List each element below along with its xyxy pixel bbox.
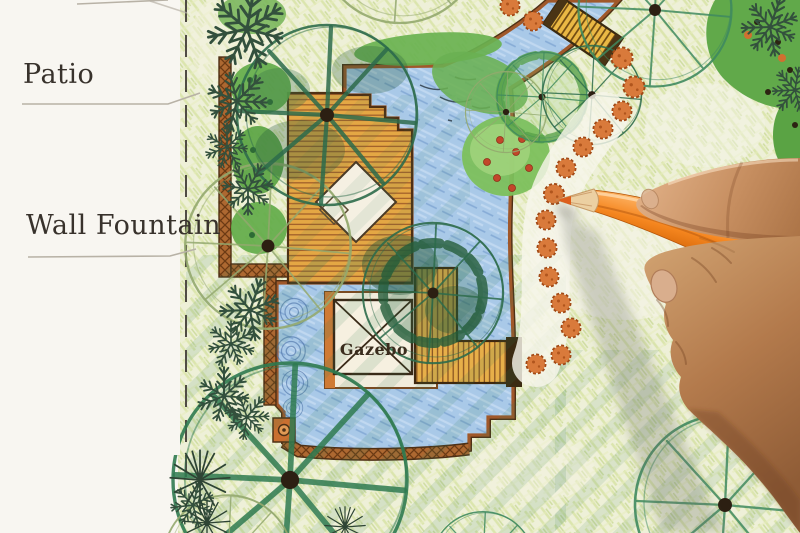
stepping-stone — [593, 119, 612, 138]
plan-drawing — [0, 0, 800, 533]
stepping-stone — [500, 0, 519, 16]
stepping-stone — [536, 210, 555, 229]
stepping-stone — [556, 158, 575, 177]
stepping-stone — [551, 293, 570, 312]
stepping-stone — [611, 47, 632, 68]
annotation-patio: Patio — [23, 59, 94, 90]
gazebo-label: Gazebo — [336, 340, 412, 359]
stepping-stone — [623, 76, 644, 97]
annotation-wall-fountain: Wall Fountain — [26, 210, 221, 241]
stepping-stone — [561, 318, 580, 337]
stepping-stone — [551, 345, 570, 364]
stepping-stone — [523, 11, 542, 30]
stepping-stone — [537, 238, 556, 257]
stepping-stone — [573, 137, 592, 156]
stepping-stone — [526, 354, 545, 373]
tree-shadow-stripes-left — [186, 255, 566, 533]
landscape-plan-photo: Patio Wall Fountain Gazebo — [0, 0, 800, 533]
stepping-stone — [539, 267, 558, 286]
stepping-stone — [612, 101, 631, 120]
